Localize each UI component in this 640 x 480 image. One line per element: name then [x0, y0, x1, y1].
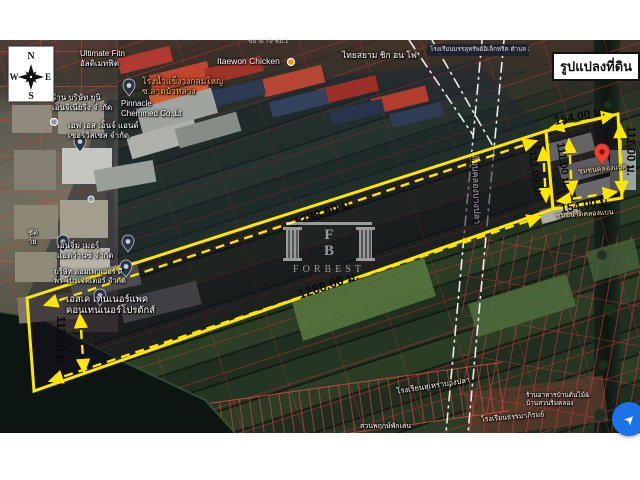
school-tooltip: โรงเรียนบรรลุทรัพย์อิเล็กทริค ตำบล ลำลูก…	[427, 44, 529, 56]
compass-rose-icon: N S W E	[8, 46, 54, 102]
measure-width-west: 111.00 ม.	[54, 316, 68, 366]
directions-button[interactable]: ➤	[612, 402, 640, 436]
watermark-monogram-b: B	[318, 243, 340, 259]
pillar-icon	[286, 227, 299, 261]
watermark-logo: F B FORBEST	[286, 222, 372, 275]
restaurant-dot-icon[interactable]	[288, 59, 295, 66]
watermark-monogram-f: F	[318, 227, 340, 243]
poi-label-pinnacle[interactable]: Pinnacle Chemmed Co.,Lt	[121, 99, 181, 118]
poi-label-ultimate[interactable]: Ultimate Fitn อัลติเมทฟิต	[80, 49, 125, 68]
compass-n: N	[27, 51, 35, 62]
poi-label-engimer[interactable]: เอ็นจิ๋ม เมอร์ แอดว้านซ์ จำกัด	[57, 241, 113, 260]
road-label-top: ขยาย 79 ชม.1	[248, 38, 289, 46]
map-pin-icon[interactable]	[123, 79, 135, 96]
poi-label-garden-south: สวนพฤกษ์พักเล่น	[360, 423, 411, 431]
poi-label-uni-engineering[interactable]: ร้าน บริษัท ยูนิ เอ็นจิเนียริ่ง จำกัด	[52, 93, 112, 112]
poi-label-container[interactable]: เอสเค เทนเนอร์แพค คอนเทนเนอร์โปรดักส์	[66, 294, 155, 317]
poi-label-fragment: ชัด าย	[28, 228, 38, 246]
shop-dot-icon[interactable]	[88, 196, 94, 202]
page-title: รูปแปลงที่ดิน	[552, 52, 640, 81]
compass-w: W	[10, 72, 19, 82]
watermark-brand: FORBEST	[286, 264, 372, 275]
poi-label-ompower[interactable]: บริษัท ออมเพาเวอร์ ดี พร โปรเจคเตอร์ จำก…	[54, 267, 126, 285]
screenshot-stage: เลียบคลองบางปลา 1288.00 ม. 1288.00 ม. 11…	[0, 0, 640, 480]
poi-label-thaisiam[interactable]: ไทยสยาม ชิก อน โฟ	[342, 50, 417, 60]
poi-label-restaurant[interactable]: ร้านอาหารบ้านต้นไม้& บ้านสวนริมคลอง	[526, 392, 589, 408]
shop-dot-icon[interactable]	[51, 119, 58, 126]
navigation-arrow-icon: ➤	[621, 411, 638, 428]
bright-field-3	[586, 238, 640, 282]
poi-label-fs-service[interactable]: เอฟ เอส เอ็นจ์ แอนด์ เซอร์วิสเซส จำกัด	[68, 121, 139, 140]
watermark-lintel	[286, 222, 372, 225]
poi-label-ice-factory[interactable]: โรงน้ำแข็งวงกลมใหญ่ ซ.ลาดบัวหลวง	[142, 76, 223, 96]
compass-s: S	[28, 91, 34, 101]
poi-label-itaewon[interactable]: Itaewon Chicken	[217, 56, 280, 66]
compass-e: E	[45, 72, 51, 82]
bright-field-2	[468, 274, 576, 337]
pillar-icon	[359, 227, 372, 261]
